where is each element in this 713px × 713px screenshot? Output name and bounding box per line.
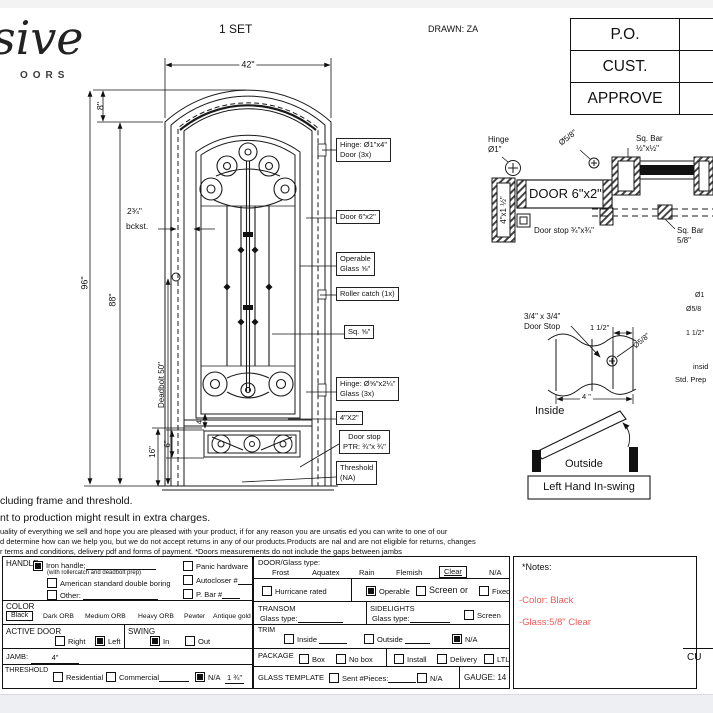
logo-script: sive [0,10,84,68]
dim-bottom-6: 6" [163,440,173,447]
iron-handle-note: (with rollercatch and deadbolt prep) [47,570,141,576]
logo-subtext: OORS [20,70,69,83]
package-title: PACKAGE [258,651,294,660]
divider [124,625,125,648]
template-sent-checkbox[interactable] [329,673,339,683]
swing-out-label: Out [198,637,210,646]
panic-hardware-checkbox[interactable] [183,561,193,571]
active-door-title: ACTIVE DOOR [6,627,61,636]
trim-inside-label: Inside [297,635,347,644]
callout-door-rail: Door 6"x2" [336,210,380,224]
package-ltl-checkbox[interactable] [484,654,494,664]
threshold-residential-label: Residential [66,673,103,682]
disclaimer-line: cluding frame and threshold. [0,495,133,508]
iron-handle-blank[interactable] [86,561,156,570]
swing-title: SWING [128,627,155,636]
jamb-value[interactable]: 4" [31,651,79,664]
disclaimer-line: nt to production might result in extra c… [0,512,210,525]
detail-doorstop-label: Door stop ¾"x¾" [534,226,594,236]
dim-backset-label: bckst. [126,221,148,232]
handle-section: HANDLE Iron handle; (with rollercatch an… [2,556,253,601]
trim-title: TRIM [258,627,275,634]
divider [459,667,460,688]
gauge-label: GAUGE: 14 [464,673,506,682]
glass-option-aquatex[interactable]: Aquatex [312,568,340,577]
template-na-label: N/A [430,674,443,683]
callout-roller-catch: Roller catch (1x) [336,287,399,301]
double-boring-checkbox[interactable] [47,578,57,588]
trim-na-checkbox[interactable] [452,634,462,644]
transom-title: TRANSOM [258,604,296,613]
signature-cust-partial: CU [687,652,701,665]
glass-option-rain[interactable]: Rain [359,568,374,577]
edge-label-std-prep: Std. Prep [675,375,706,384]
template-sent-blank[interactable] [388,674,416,683]
pbar-checkbox[interactable] [183,589,193,599]
color-option-mediumorb[interactable]: Medium ORB [85,613,126,620]
color-section: COLOR Black Dark ORB Medium ORB Heavy OR… [2,600,253,625]
autocloser-label: Autocloser # [196,576,256,585]
handle-other-label: Other: [60,591,158,600]
edge-label-dia1: Ø1 [695,292,704,301]
iron-handle-checkbox[interactable] [33,561,43,571]
dim-bottom-16: 16" [148,446,158,458]
note-color: -Color: Black [519,595,573,606]
glass-type-title: DOOR/Glass type: [258,558,320,567]
package-box-label: Box [312,655,325,664]
handle-other-blank[interactable] [83,591,158,600]
dimension-lines [84,58,331,486]
package-delivery-checkbox[interactable] [437,654,447,664]
glass-option-frost[interactable]: Frost [272,568,289,577]
callout-threshold: Threshold (NA) [336,461,377,485]
panic-hardware-label: Panic hardware [196,562,248,571]
active-right-label: Right [68,637,86,646]
package-install-checkbox[interactable] [394,654,404,664]
stop-detail-label: 3/4" x 3/4" Door Stop [524,312,560,332]
trim-inside-blank[interactable] [319,635,347,644]
callout-hinge-glass: Hinge: Ø⅝"x2¼" Glass (3x) [336,377,399,401]
color-option-antiquegold[interactable]: Antique gold [213,613,251,620]
approval-table: P.O. CUST. APPROVE [570,18,713,115]
color-option-darkorb[interactable]: Dark ORB [43,613,74,620]
swing-handing-label: Left Hand In-swing [543,481,635,495]
transom-sidelights-section: TRANSOM Glass type: SIDELIGHTS Glass typ… [253,601,510,625]
sidelights-glass-blank[interactable] [410,614,450,623]
threshold-value: 1 ¾" [225,673,244,684]
color-option-pewter[interactable]: Pewter [184,613,205,620]
drawn-by-label: DRAWN: ZA [428,24,478,35]
dim-deadbolt: Deadbolt 50" [157,362,167,408]
template-sent-label: Sent #Pieces: [342,674,416,683]
active-right-checkbox[interactable] [55,636,65,646]
po-label: P.O. [571,19,680,50]
package-install-label: Install [407,655,427,664]
divider [366,602,367,624]
color-option-black[interactable]: Black [6,611,33,621]
package-ltl-label: LTL [497,655,509,664]
detail-hinge-label: Hinge Ø1" [488,135,509,155]
transom-glass-blank[interactable] [298,614,343,623]
callout-door-stop: Door stop PTR: ¾"x ¾" [339,430,390,454]
table-row: APPROVE [571,83,713,114]
package-nobox-label: No box [349,655,373,664]
notes-title: *Notes: [522,562,552,572]
threshold-commercial-checkbox[interactable] [106,672,116,682]
detail-jamb-size-label: 4"x1 ½" [499,196,509,223]
detail-door-label: DOOR 6"x2" [529,186,602,202]
po-value-cell[interactable] [680,19,713,50]
signature-line[interactable] [683,648,713,649]
dim-height-88: 88" [107,293,118,306]
callout-operable-glass: Operable Glass ⅝" [336,252,375,276]
glass-option-clear[interactable]: Clear [439,566,467,578]
threshold-section: THRESHOLD Residential Commercial N/A 1 ¾… [2,664,253,689]
detail-sqbar58-label: Sq. Bar 5/8" [677,226,704,246]
trim-outside-label: Outside [377,635,430,644]
swing-in-checkbox[interactable] [150,636,160,646]
dim-height-96: 96" [79,276,90,289]
glass-option-flemish[interactable]: Flemish [396,568,422,577]
package-delivery-label: Delivery [450,655,477,664]
color-title: COLOR [6,602,34,611]
disclaimer-line: uality of everything we sell and hope yo… [0,527,447,536]
color-option-heavyorb[interactable]: Heavy ORB [138,613,174,620]
disclaimer-line: d determine how can we help you, but we … [0,537,476,546]
transom-glass-label: Glass type: [260,614,343,623]
screen-or-checkbox[interactable] [416,586,426,596]
detail-sqbar-half-label: Sq. Bar ½"x½" [636,134,663,154]
divider [386,649,387,666]
edge-label-1half: 1 1/2" [686,330,704,339]
fixed-label: Fixed [492,587,510,596]
approve-label: APPROVE [571,83,680,114]
callout-hinge-door: Hinge: Ø1"x4" Door (3x) [336,138,391,162]
swing-out-checkbox[interactable] [185,636,195,646]
callout-sq-bar: Sq. ⅝" [344,325,374,339]
active-left-checkbox[interactable] [95,636,105,646]
stop-dim-1half: 1 1/2" [590,323,609,332]
dim-arch-8: 8" [95,102,106,110]
disclaimer-line: r terms and conditions, delivery pdf and… [0,547,402,556]
glass-template-title: GLASS TEMPLATE [258,673,324,682]
shop-drawing-page: sive OORS 1 SET DRAWN: ZA P.O. CUST. APP… [0,0,713,713]
package-box-checkbox[interactable] [299,654,309,664]
hurricane-checkbox[interactable] [262,586,272,596]
template-na-checkbox[interactable] [417,673,427,683]
threshold-title: THRESHOLD [5,667,48,674]
stop-dim-4: 4 " [580,392,593,401]
sidelights-title: SIDELIGHTS [370,604,415,613]
package-nobox-checkbox[interactable] [336,654,346,664]
threshold-commercial-label: Commercial [119,673,189,682]
sidelights-screen-label: Screen [477,611,501,620]
active-swing-section: ACTIVE DOOR Right Left SWING In Out [2,624,253,649]
threshold-na-checkbox[interactable] [195,672,205,682]
trim-section: TRIM Inside Outside N/A [253,624,510,649]
notes-box: *Notes: -Color: Black -Glass:5/8" Clear [513,556,697,689]
active-left-label: Left [108,637,121,646]
sidelights-screen-checkbox[interactable] [464,610,474,620]
operable-label: Operable [379,587,410,596]
trim-outside-blank[interactable] [405,635,430,644]
edge-label-inside: insid [693,362,708,371]
glass-template-section: GLASS TEMPLATE Sent #Pieces: N/A GAUGE: … [253,666,510,689]
table-row: CUST. [571,51,713,83]
edge-label-dia58: Ø5/8 [686,306,701,315]
table-row: P.O. [571,19,713,51]
trim-outside-checkbox[interactable] [364,634,374,644]
double-boring-label: American standard double boring [60,579,171,588]
hurricane-glazing-section: Hurricane rated Operable Screen or Fixed [253,578,510,602]
approve-value-cell[interactable] [680,83,713,114]
divider [351,579,352,601]
fixed-checkbox[interactable] [479,586,489,596]
threshold-residential-checkbox[interactable] [53,672,63,682]
sidelights-glass-label: Glass type: [372,614,450,623]
swing-outside-label: Outside [565,458,603,472]
autocloser-checkbox[interactable] [183,575,193,585]
threshold-na-label: N/A [208,673,221,682]
handle-other-checkbox[interactable] [47,590,57,600]
pbar-label: P. Bar # [196,590,240,599]
dim-backset: 2¾" [127,206,142,217]
trim-na-label: N/A [465,635,478,644]
trim-inside-checkbox[interactable] [284,634,294,644]
iron-handle-label: Iron handle; [46,561,156,570]
glass-type-section: DOOR/Glass type: Frost Aquatex Rain Flem… [253,556,510,579]
callout-kick-rail: 4"X2" [336,411,363,425]
jamb-section: JAMB: 4" [2,648,253,665]
pbar-blank[interactable] [222,590,240,599]
dim-width-42: 42" [239,59,256,70]
package-section: PACKAGE Box No box Install Delivery LTL [253,648,510,667]
callout-leaders [242,150,344,482]
jamb-title: JAMB: [6,652,28,661]
swing-in-label: In [163,637,169,646]
note-glass: -Glass:5/8" Clear [519,617,591,628]
glass-option-na[interactable]: N/A [489,568,502,577]
cust-label: CUST. [571,51,680,82]
dim-bottom-4: 4" [194,418,203,425]
cust-value-cell[interactable] [680,51,713,82]
threshold-commercial-blank[interactable] [159,673,189,682]
set-count-label: 1 SET [219,22,252,37]
swing-inside-label: Inside [535,405,564,419]
hurricane-label: Hurricane rated [275,587,327,596]
screen-or-label: Screen or [429,585,468,595]
operable-checkbox[interactable] [366,586,376,596]
